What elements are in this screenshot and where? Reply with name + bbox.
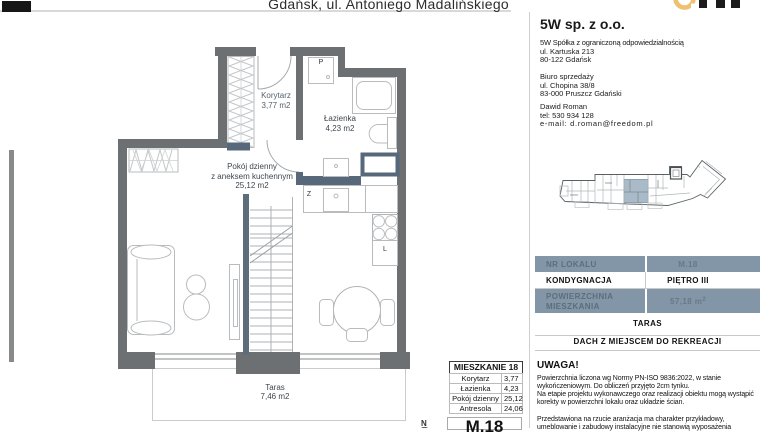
svg-text:N: N xyxy=(421,419,427,428)
